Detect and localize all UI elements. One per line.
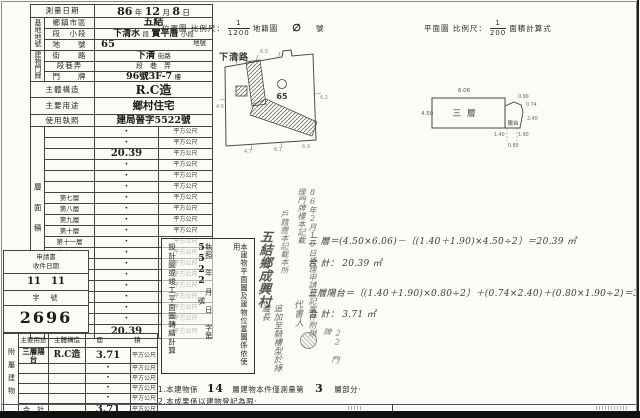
note-month: 月 bbox=[205, 288, 214, 296]
balcony-dimension: 1.40 bbox=[494, 132, 505, 138]
seal-stamp bbox=[300, 332, 317, 349]
edge-dimension: 6.2 bbox=[320, 95, 328, 101]
edge-dimension: 6.6 bbox=[232, 54, 240, 60]
door-plate-group-text: 建物門牌 bbox=[34, 51, 41, 79]
floor-row-unit: 平方公尺 bbox=[159, 215, 213, 226]
floor-row-unit: 平方公尺 bbox=[159, 193, 213, 204]
location-map-sketch: 65 6.6 6.0 4.6 4.7 6.1 6.9 6.2 bbox=[216, 44, 348, 156]
floor-plan-scale-fraction: 1 200 bbox=[490, 20, 506, 37]
scan-bottom-edge bbox=[0, 411, 640, 418]
attached-row-structure bbox=[49, 394, 86, 404]
balcony-dimension: 2.40 bbox=[527, 116, 538, 122]
attached-header-area: 面 積 bbox=[86, 334, 158, 348]
floor-row-value: · bbox=[95, 314, 159, 325]
site-lot-group-label: 基地地號 bbox=[31, 18, 45, 51]
scale-numerator: 1 bbox=[228, 20, 250, 29]
structure-label: 主體構造 bbox=[31, 82, 95, 98]
door-number-value: 96號3F-7 樓 bbox=[95, 71, 213, 82]
scale-numerator: 1 bbox=[490, 20, 506, 29]
street-suffix: 街路 bbox=[158, 52, 171, 60]
location-map-scale-label: 比例尺： bbox=[191, 23, 225, 34]
balcony-projection-lines bbox=[507, 128, 517, 141]
floor-row-value: · bbox=[95, 182, 159, 193]
attached-row-unit: 平方公尺 bbox=[131, 374, 158, 384]
note-col-left: 設計圖或竣工平面圖轉繪計算 bbox=[168, 243, 176, 369]
floor-row-value: · bbox=[95, 127, 159, 138]
calc-third-floor: 三 層＝(4.50×6.06)－〔(1.40＋1.90)×4.50÷2〕＝20.… bbox=[308, 234, 634, 247]
floor-row-label: 第十層 bbox=[45, 226, 95, 237]
license-value: 建局晉字5522號 bbox=[95, 115, 213, 127]
receipt-number-label: 字 號 bbox=[4, 291, 88, 306]
section-suffix: 段 bbox=[143, 30, 150, 38]
door-plate-group-label: 建物門牌 bbox=[31, 51, 45, 82]
balcony-dimension: 1.90 bbox=[518, 132, 529, 138]
receipt-number-value: 2696 bbox=[4, 306, 88, 332]
attached-row-use bbox=[19, 394, 49, 404]
floor-row-label bbox=[45, 127, 95, 138]
building-block-annex bbox=[236, 86, 247, 96]
location-map-header: 位置圖 比例尺： 1 1200 地籍圖 ∅ 號 bbox=[162, 20, 324, 37]
attached-row-use bbox=[19, 384, 49, 394]
floor-row-unit: 平方公尺 bbox=[159, 127, 213, 138]
area-calculation-label: 面積計算式 bbox=[509, 23, 552, 34]
date-year-unit: 年 bbox=[135, 8, 143, 17]
floor-row-unit: 平方公尺 bbox=[159, 182, 213, 193]
floor-row-unit: 平方公尺 bbox=[159, 204, 213, 215]
lot-label: 地 號 bbox=[45, 40, 95, 51]
floor-plan-header: 平面圖 比例尺： 1 200 面積計算式 bbox=[424, 20, 552, 37]
handwritten-doorplate-note: 22 門牌 bbox=[318, 327, 344, 371]
door-number-hand: 96號3F-7 bbox=[126, 71, 172, 82]
floor-row-label bbox=[45, 138, 95, 149]
survey-date-value: 86 年 12 月 8 日 bbox=[95, 5, 213, 18]
cadastral-map-label: 地籍圖 bbox=[253, 23, 279, 34]
balcony-dimension: 0.90 bbox=[518, 94, 529, 100]
edge-dimension: 6.9 bbox=[302, 144, 310, 150]
floor-row-value: · bbox=[95, 281, 159, 292]
handwritten-household-note: 戶籍謄本記載本所 bbox=[279, 210, 290, 305]
attached-row-use bbox=[19, 374, 49, 384]
attached-row-area: · bbox=[86, 374, 131, 384]
floor-row-unit: 平方公尺 bbox=[159, 138, 213, 149]
handwritten-addition-note: 追加至騎樓型於綠邊長 bbox=[259, 304, 283, 380]
source-note-box: 本建物平面圖及建物位置圖係依使用 執照 年 月 日 字第 5522 號 設計圖或… bbox=[161, 238, 255, 374]
lane-value: 段 巷 弄 bbox=[95, 61, 213, 71]
note-col-right: 本建物平面圖及建物位置圖係依使用 bbox=[234, 243, 248, 369]
license-hand: 建局晉字5522號 bbox=[117, 115, 191, 126]
edge-dimension: 6.0 bbox=[260, 49, 268, 55]
lot-number-text: 65 bbox=[276, 92, 288, 101]
lot-marker-circle bbox=[278, 80, 287, 89]
street-value: 下清 街路 bbox=[95, 51, 213, 62]
floor-row-value: · bbox=[95, 226, 159, 237]
floor-row-label: 第十一層 bbox=[45, 237, 95, 248]
edge-dimension: 4.6 bbox=[216, 104, 224, 110]
receipt-title-line2: 收件日期 bbox=[33, 262, 59, 270]
floor-row-value: · bbox=[95, 292, 159, 303]
note1-measured-floor-hand: 3 bbox=[315, 382, 323, 395]
balcony-dimension: 0.74 bbox=[526, 102, 537, 108]
location-map-title: 位置圖 bbox=[162, 23, 188, 34]
door-number-label: 門 牌 bbox=[45, 71, 95, 82]
location-map-scale-fraction: 1 1200 bbox=[228, 20, 250, 37]
note1-middle: 層建物本件僅測量第 bbox=[232, 385, 304, 394]
attached-row-structure bbox=[49, 364, 86, 374]
balcony-label: 陽台 bbox=[507, 119, 519, 127]
floor-plan-scale-label: 比例尺： bbox=[453, 23, 487, 34]
lot-value: 65 地號 bbox=[95, 40, 213, 51]
receipt-box: 申請書 收件日期 11 11 字 號 2696 bbox=[3, 250, 89, 333]
street-name-hand: 下清 bbox=[136, 51, 155, 62]
attached-row-unit: 平方公尺 bbox=[131, 364, 158, 374]
footer-smudge bbox=[596, 406, 628, 410]
note1-prefix: 1.本建物係 bbox=[158, 385, 198, 394]
floor-row-value: · bbox=[95, 138, 159, 149]
note-day: 日 bbox=[205, 306, 214, 314]
attached-row-area: 3.71 bbox=[86, 348, 131, 364]
floor-area-group-text: 層面積 bbox=[34, 183, 42, 245]
main-use-value: 鄉村住宅 bbox=[95, 98, 213, 115]
receipt-date-value: 11 11 bbox=[4, 274, 88, 291]
attached-row-area: · bbox=[86, 384, 131, 394]
attached-row-structure: R.C造 bbox=[49, 348, 86, 364]
structure-value: R.C造 bbox=[95, 82, 213, 98]
floor-row-unit: 平方公尺 bbox=[159, 149, 213, 160]
lane-label: 段巷弄 bbox=[45, 61, 95, 71]
receipt-title: 申請書 收件日期 bbox=[4, 251, 88, 274]
attached-row-area: · bbox=[86, 364, 131, 374]
note-no-suffix: 號 bbox=[197, 297, 206, 305]
date-month: 12 bbox=[145, 5, 160, 18]
survey-date-label: 測量日期 bbox=[31, 5, 95, 18]
lot-suffix: 地號 bbox=[193, 40, 206, 47]
floor-row-value: · bbox=[95, 193, 159, 204]
edge-dimension: 4.7 bbox=[244, 149, 252, 155]
building-block-vertical bbox=[246, 60, 266, 106]
floor-row-value: · bbox=[95, 171, 159, 182]
floor-row-value-third-floor: 20.39 bbox=[95, 149, 159, 160]
attached-row-structure bbox=[49, 384, 86, 394]
cadastral-sheet-hand-mark: ∅ bbox=[292, 23, 302, 34]
note1-suffix: 層部分· bbox=[334, 385, 361, 394]
township-hand: 五結 bbox=[144, 18, 164, 29]
attached-row-use bbox=[19, 364, 49, 374]
handwritten-village-name: 五結鄉成興村 bbox=[253, 230, 275, 311]
area-calculation-block: 三 層＝(4.50×6.06)－〔(1.40＋1.90)×4.50÷2〕＝20.… bbox=[308, 234, 634, 320]
license-label: 使用執照 bbox=[31, 115, 95, 127]
plan-dimension-left: 4.50 bbox=[421, 111, 434, 117]
lot-number-hand: 65 bbox=[101, 40, 115, 50]
date-day-unit: 日 bbox=[182, 8, 190, 17]
township-label: 鄉鎮市區 bbox=[45, 18, 95, 29]
calc-total: 合 計： 20.39 ㎡ bbox=[308, 256, 634, 269]
attached-row-use: 三層陽台 bbox=[19, 348, 49, 364]
floor-row-label: 第九層 bbox=[45, 215, 95, 226]
scale-denominator: 1200 bbox=[228, 29, 250, 37]
date-month-unit: 月 bbox=[162, 8, 170, 17]
floor-row-value: · bbox=[95, 215, 159, 226]
section-name-hand: 下清水 bbox=[113, 29, 140, 39]
floor-row-value: · bbox=[95, 259, 159, 270]
street-label: 街 路 bbox=[45, 51, 95, 62]
floor-row-value: · bbox=[95, 248, 159, 259]
survey-form-sheet: 測量日期 86 年 12 月 8 日 基地地號 鄉鎮市區 五結 段 小段 下清水… bbox=[0, 0, 640, 418]
door-number-suffix: 樓 bbox=[175, 73, 182, 81]
floor-row-label bbox=[45, 149, 95, 160]
note-no-prefix: 字第 bbox=[205, 324, 214, 340]
floor-row-label bbox=[45, 182, 95, 193]
main-use-hand: 鄉村住宅 bbox=[133, 100, 175, 112]
floor-row-value: · bbox=[95, 270, 159, 281]
floor-row-label: 第七層 bbox=[45, 193, 95, 204]
third-floor-room-label: 三層 bbox=[452, 109, 481, 119]
floor-row-value: · bbox=[95, 160, 159, 171]
floor-row-value: · bbox=[95, 204, 159, 215]
cadastral-sheet-number-suffix: 號 bbox=[316, 23, 325, 34]
scale-denominator: 200 bbox=[490, 29, 506, 37]
floor-row-label bbox=[45, 171, 95, 182]
attached-header-structure: 主體構造 bbox=[49, 334, 86, 348]
receipt-title-line1: 申請書 bbox=[36, 253, 56, 261]
floor-row-value: · bbox=[95, 303, 159, 314]
calc-balcony: 三層陽台＝〔(1.40＋1.90)×0.80÷2〕＋(0.74×2.40)＋(0… bbox=[308, 286, 634, 299]
floor-row-label: 第八層 bbox=[45, 204, 95, 215]
bottom-note-2: 2.本成果係以建物登記為限· bbox=[158, 396, 257, 407]
balcony-dimension: 0.80 bbox=[508, 143, 519, 149]
attached-row-unit: 平方公尺 bbox=[131, 394, 158, 404]
structure-hand: R.C造 bbox=[136, 83, 172, 97]
date-year: 86 bbox=[117, 5, 132, 18]
floor-row-label bbox=[45, 160, 95, 171]
floor-row-unit: 平方公尺 bbox=[159, 160, 213, 171]
floor-plan-title: 平面圖 bbox=[424, 23, 450, 34]
plan-dimension-top: 6.06 bbox=[458, 88, 471, 94]
edge-dimension: 6.1 bbox=[274, 147, 282, 153]
note-license-number-hand: 5522 bbox=[196, 243, 206, 287]
attached-group-text: 附屬建物 bbox=[8, 348, 15, 400]
note1-floor-count-hand: 14 bbox=[207, 382, 223, 395]
attached-row-structure bbox=[49, 374, 86, 384]
main-use-label: 主要用途 bbox=[31, 98, 95, 115]
footer-rule bbox=[2, 404, 636, 405]
floor-row-unit: 平方公尺 bbox=[159, 226, 213, 237]
bottom-note-1: 1.本建物係 14 層建物本件僅測量第 3 層部分· bbox=[158, 382, 361, 395]
attached-header-use: 主要用途 bbox=[19, 334, 49, 348]
date-day: 8 bbox=[172, 5, 180, 18]
footer-divider-tick bbox=[392, 404, 393, 411]
note-col-middle: 執照 年 月 日 字第 5522 號 bbox=[196, 243, 212, 369]
section-label: 段 小段 bbox=[45, 29, 95, 40]
footer-smudge bbox=[348, 406, 362, 410]
floor-row-unit: 平方公尺 bbox=[159, 171, 213, 182]
attached-row-unit: 平方公尺 bbox=[131, 384, 158, 394]
calc-balcony-total: 合 計： 3.71 ㎡ bbox=[308, 307, 634, 320]
site-lot-group-text: 基地地號 bbox=[34, 19, 41, 47]
scan-right-edge bbox=[637, 0, 639, 418]
floor-row-value: · bbox=[95, 237, 159, 248]
attached-row-area: · bbox=[86, 394, 131, 404]
building-block-diagonal bbox=[250, 99, 317, 136]
attached-row-unit: 平方公尺 bbox=[131, 348, 158, 364]
floor-plan-sketch: 三層 6.06 4.50 陽台 0.90 0.74 2.40 1.90 1.40… bbox=[420, 78, 640, 170]
